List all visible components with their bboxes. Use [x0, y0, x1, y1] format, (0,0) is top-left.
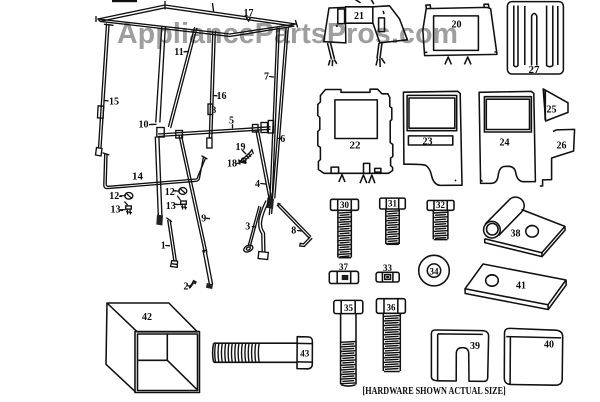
svg-text:41: 41 — [516, 281, 526, 292]
svg-text:38: 38 — [511, 229, 521, 240]
svg-text:13: 13 — [166, 201, 176, 212]
svg-text:17: 17 — [244, 8, 254, 19]
svg-text:27: 27 — [529, 64, 541, 76]
svg-text:14: 14 — [132, 171, 144, 183]
svg-text:7: 7 — [264, 72, 269, 83]
svg-text:24: 24 — [500, 138, 510, 149]
svg-text:3: 3 — [245, 222, 250, 233]
svg-text:2: 2 — [184, 282, 189, 293]
svg-text:18: 18 — [227, 159, 237, 170]
svg-text:31: 31 — [388, 199, 398, 209]
svg-text:20: 20 — [452, 20, 462, 31]
svg-text:4: 4 — [255, 179, 260, 190]
svg-text:3: 3 — [212, 105, 217, 115]
svg-text:23: 23 — [423, 137, 433, 148]
svg-text:42: 42 — [142, 312, 152, 323]
svg-text:43: 43 — [300, 349, 310, 359]
svg-text:25: 25 — [547, 105, 557, 116]
svg-text:39: 39 — [470, 341, 480, 352]
svg-text:30: 30 — [340, 200, 350, 210]
svg-text:33: 33 — [383, 263, 393, 273]
svg-text:35: 35 — [344, 303, 354, 313]
svg-text:40: 40 — [544, 340, 554, 351]
svg-text:12: 12 — [109, 191, 119, 202]
svg-text:13: 13 — [111, 204, 121, 215]
svg-text:1: 1 — [161, 241, 166, 252]
svg-text:37: 37 — [339, 262, 349, 272]
svg-text:21: 21 — [354, 11, 364, 22]
svg-text:8: 8 — [291, 226, 296, 237]
svg-text:32: 32 — [436, 200, 446, 210]
svg-text:22: 22 — [350, 140, 362, 152]
svg-text:5: 5 — [229, 116, 234, 127]
svg-text:9: 9 — [201, 214, 206, 225]
svg-text:19: 19 — [236, 142, 246, 153]
svg-text:[HARDWARE SHOWN ACTUAL SIZE]: [HARDWARE SHOWN ACTUAL SIZE] — [363, 385, 506, 397]
svg-text:15: 15 — [109, 97, 119, 108]
svg-text:10: 10 — [139, 120, 149, 131]
svg-text:16: 16 — [217, 91, 227, 102]
svg-text:6: 6 — [280, 134, 285, 145]
svg-text:12: 12 — [165, 187, 175, 198]
svg-text:36: 36 — [387, 303, 397, 313]
svg-text:34: 34 — [430, 267, 440, 277]
svg-text:26: 26 — [557, 141, 567, 152]
svg-text:11: 11 — [174, 47, 183, 58]
